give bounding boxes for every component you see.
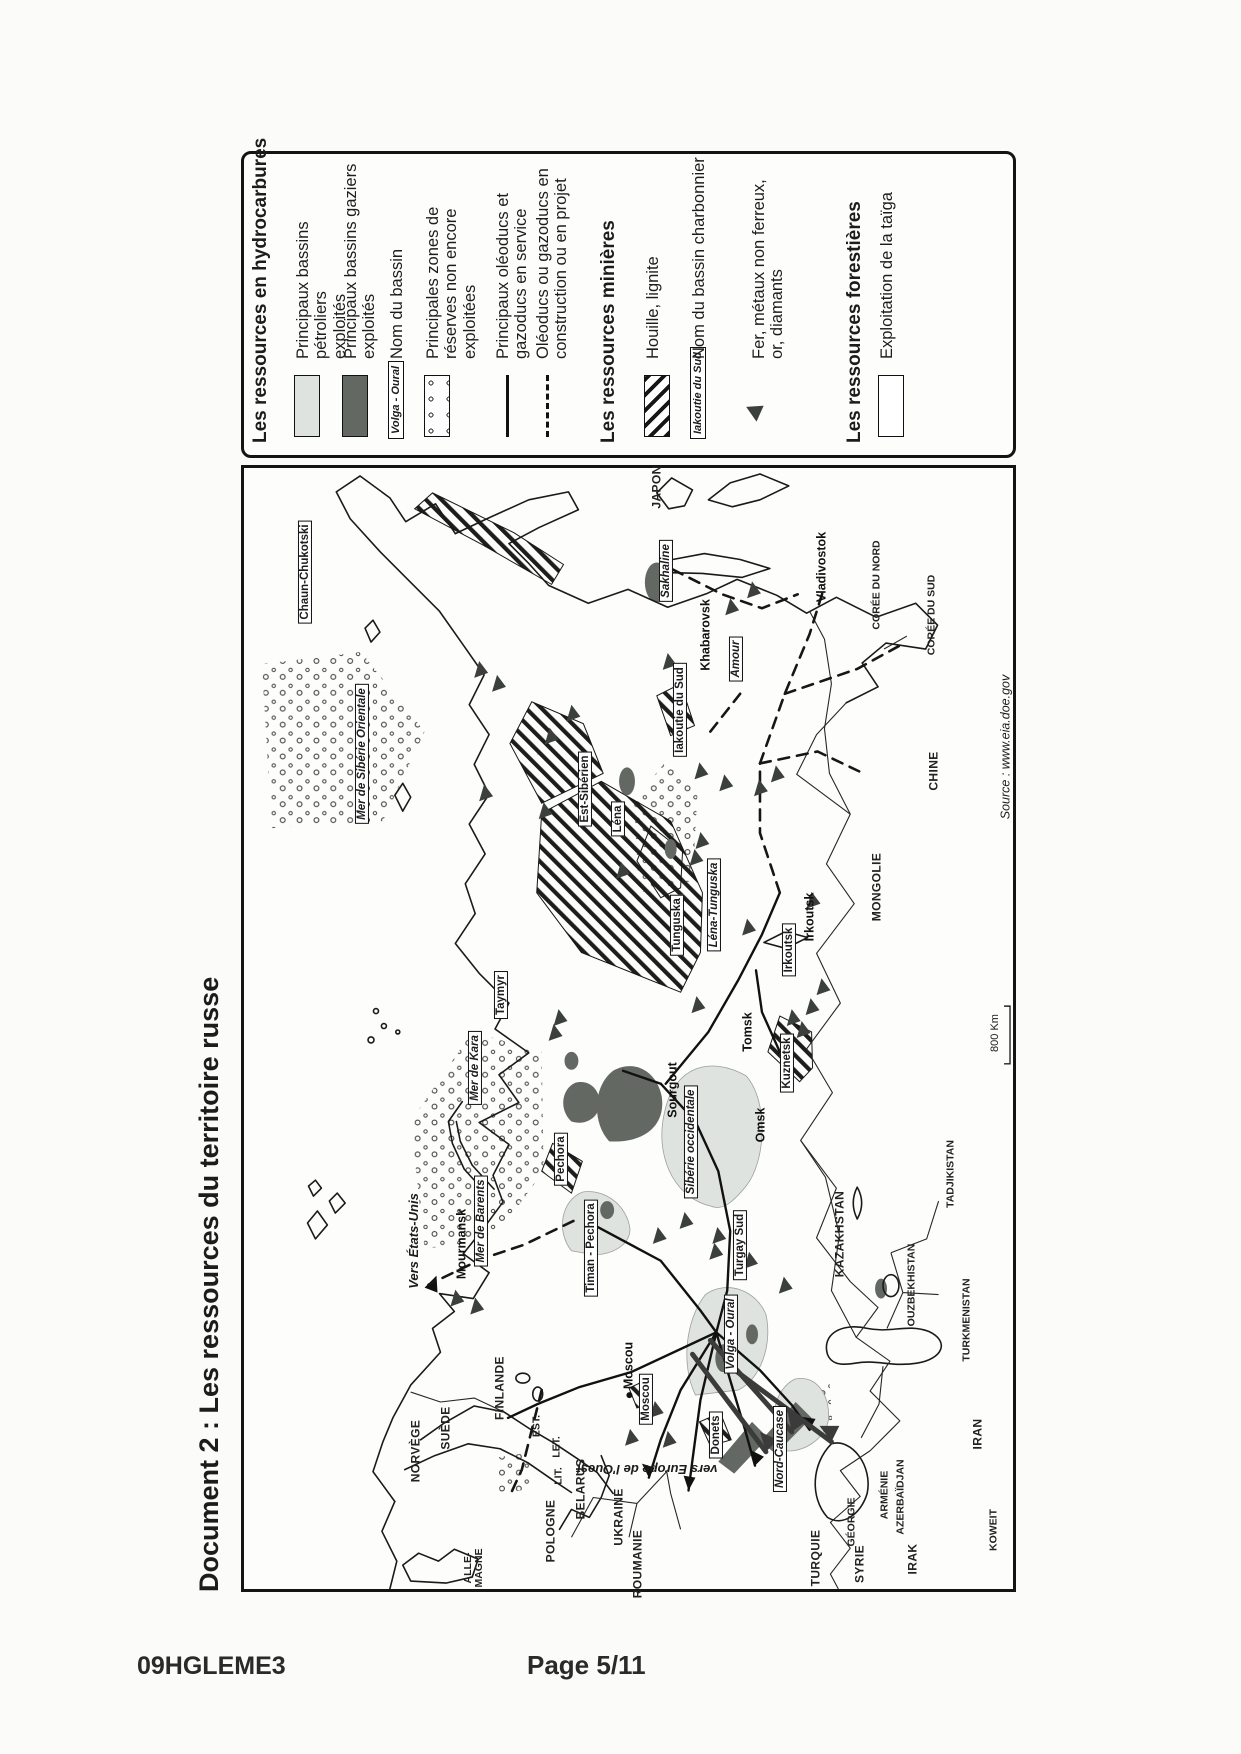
- ore-triangle-icon: [725, 598, 739, 615]
- ore-triangle-icon: [653, 1227, 667, 1244]
- map-label: Mer de Sibérie Orientale: [355, 684, 369, 824]
- map-label: FINLANDE: [494, 1356, 507, 1420]
- map-label: ROUMANIE: [632, 1530, 645, 1599]
- ore-triangle-icon: [771, 765, 785, 782]
- ore-triangle-icon: [779, 1277, 793, 1294]
- coal-swatch: [644, 375, 670, 437]
- ore-triangle-icon: [709, 1243, 723, 1260]
- document-title: Document 2 : Les ressources du territoir…: [194, 932, 234, 1592]
- map-label: Moscou: [639, 1373, 653, 1424]
- document-code: 09HGLEME3: [137, 1652, 286, 1681]
- coastlines: [308, 474, 942, 1589]
- map-label: Mer de Barents: [474, 1175, 488, 1266]
- map-label: Mer de Kara: [468, 1031, 482, 1105]
- map-label: LIT.: [553, 1467, 564, 1485]
- pipeline-solid-swatch: [506, 375, 509, 437]
- map-label: POLOGNE: [545, 1500, 558, 1563]
- legend-item-label: Nom du bassin charbonnier: [690, 154, 708, 359]
- ore-triangle-icon: [719, 774, 733, 791]
- map-label: Khabarovsk: [699, 599, 712, 671]
- map-label: Vers États-Unis: [407, 1193, 421, 1289]
- ore-triangle-icon: [492, 675, 506, 692]
- ore-triangle-icon: [680, 1212, 694, 1229]
- map-label: Léna: [611, 802, 625, 837]
- map-label: Vladivostok: [815, 532, 828, 602]
- map-label: KAZAKHSTAN: [834, 1191, 847, 1277]
- ore-triangle-icon: [554, 1009, 568, 1026]
- gas-basin-swatch: [342, 375, 368, 437]
- map-label: SYRIE: [854, 1545, 867, 1583]
- pipeline-dashed-swatch: [546, 375, 549, 437]
- basin-name-example: Iakoutie du Sud: [690, 347, 706, 439]
- map-label: GÉORGIE: [846, 1497, 857, 1546]
- legend-item-label: Oléoducs ou gazoducs en construction ou …: [534, 154, 571, 359]
- map-label: TURQUIE: [810, 1530, 823, 1587]
- map-label: BELARUS: [575, 1459, 588, 1520]
- map-label: MONGOLIE: [871, 853, 884, 922]
- map-label: Nord-Caucase: [773, 1406, 787, 1492]
- map-label: IRAK: [907, 1544, 920, 1575]
- ore-triangle-swatch: [746, 398, 769, 421]
- ore-triangle-icon: [787, 1009, 801, 1026]
- map-scale-label: 800 Km: [990, 1014, 1002, 1052]
- oil-basin-swatch: [294, 375, 320, 437]
- russia-resources-map: [244, 468, 1013, 1589]
- map-label: Chaun-Chukotski: [298, 520, 312, 623]
- map-label: Irkoutsk: [803, 893, 816, 942]
- map-label: AZERBAÏDJAN: [895, 1459, 906, 1534]
- map-label: CHINE: [928, 751, 941, 790]
- map-label: CORÉE DU SUD: [926, 575, 937, 656]
- map-label: IRAN: [972, 1419, 985, 1450]
- legend-section-header: Les ressources minières: [598, 220, 620, 443]
- map-label: UKRAINE: [613, 1488, 626, 1545]
- map-label: Kuznetsk: [780, 1033, 794, 1092]
- map-label: EST.: [531, 1415, 542, 1437]
- map-source-credit: Source : www.eia.doe.gov: [999, 675, 1012, 820]
- map-label: ARMÉNIE: [879, 1471, 890, 1519]
- map-label: Omsk: [754, 1108, 767, 1143]
- map-label: SUÈDE: [440, 1406, 453, 1449]
- ore-triangle-icon: [470, 1298, 484, 1315]
- legend-item-label: Nom du bassin: [388, 154, 406, 359]
- ore-triangle-icon: [663, 1431, 677, 1448]
- map-frame: JAPONSakhalineVladivostokCORÉE DU NORDCO…: [241, 465, 1016, 1592]
- legend-item-label: Fer, métaux non ferreux, or, diamants: [750, 154, 787, 359]
- legend-item-label: Houille, lignite: [644, 154, 662, 359]
- map-label: Tomsk: [741, 1012, 754, 1051]
- map-label: Pechora: [554, 1132, 568, 1185]
- map-label: Sourgout: [666, 1062, 679, 1118]
- map-label: Est-Sibérien: [578, 751, 592, 826]
- map-label: Donets: [709, 1412, 723, 1459]
- map-label: NORVÈGE: [410, 1420, 423, 1483]
- legend-item-label: Principaux oléoducs et gazoducs en servi…: [494, 154, 531, 359]
- map-label: Léna-Tunguska: [707, 859, 721, 952]
- legend-item-label: Principales zones de réserves non encore…: [424, 154, 479, 359]
- map-label: TADJIKISTAN: [945, 1140, 956, 1208]
- map-label: Irkoutsk: [782, 924, 796, 977]
- ore-triangle-icon: [742, 919, 756, 936]
- reserves-swatch: [424, 375, 450, 437]
- map-label: vers Europe de l'Ouest: [576, 1462, 717, 1476]
- rotated-figure: JAPONSakhalineVladivostokCORÉE DU NORDCO…: [241, 151, 1016, 1592]
- map-label: Taymyr: [494, 971, 508, 1019]
- map-label: Volga - Oural: [724, 1294, 738, 1373]
- map-label: Sakhaline: [659, 540, 673, 602]
- ore-triangle-icon: [549, 1024, 563, 1041]
- map-label: JAPON: [651, 465, 664, 508]
- scanned-document-page: Document 2 : Les ressources du territoir…: [0, 0, 1241, 1754]
- map-label: TURKMENISTAN: [961, 1278, 972, 1361]
- map-label: Iakoutie du Sud: [673, 663, 687, 757]
- ore-triangle-icon: [692, 996, 706, 1013]
- legend-item-label: Exploitation de la taïga: [878, 154, 896, 359]
- map-label: Tunguska: [670, 894, 684, 955]
- map-label: LET.: [551, 1436, 562, 1458]
- map-legend: Les ressources en hydrocarburesPrincipau…: [241, 151, 1016, 458]
- ore-triangle-icon: [806, 998, 820, 1015]
- map-label: Mourmansk: [455, 1209, 468, 1279]
- taiga-swatch: [878, 375, 904, 437]
- map-label: ALLE- MAGNE: [463, 1548, 485, 1587]
- basin-name-example: Volga - Oural: [388, 361, 404, 439]
- legend-section-header: Les ressources en hydrocarbures: [250, 138, 272, 443]
- ore-triangle-icon: [450, 1290, 464, 1307]
- ore-triangle-icon: [712, 1227, 726, 1244]
- map-label: Moscou: [622, 1342, 635, 1398]
- map-label: KOWEIT: [988, 1509, 999, 1551]
- legend-item-label: Principaux bassins gaziers exploités: [342, 154, 379, 359]
- map-label: Timan - Pechora: [584, 1199, 598, 1296]
- map-label: Turgay Sud: [733, 1210, 747, 1280]
- map-label: Amour: [729, 636, 743, 681]
- ore-triangle-icon: [694, 762, 708, 779]
- map-label: OUZBEKHISTAN: [906, 1244, 917, 1327]
- ore-triangle-icon: [566, 705, 580, 722]
- ore-triangle-icon: [817, 978, 831, 995]
- scale-bar: [1004, 1006, 1010, 1064]
- map-label: Sibérie occidentale: [684, 1086, 698, 1199]
- legend-section-header: Les ressources forestières: [844, 201, 866, 443]
- map-label: CORÉE DU NORD: [871, 540, 882, 629]
- ore-triangle-icon: [695, 832, 709, 849]
- ore-triangle-icon: [625, 1429, 639, 1446]
- page-number: Page 5/11: [527, 1650, 646, 1681]
